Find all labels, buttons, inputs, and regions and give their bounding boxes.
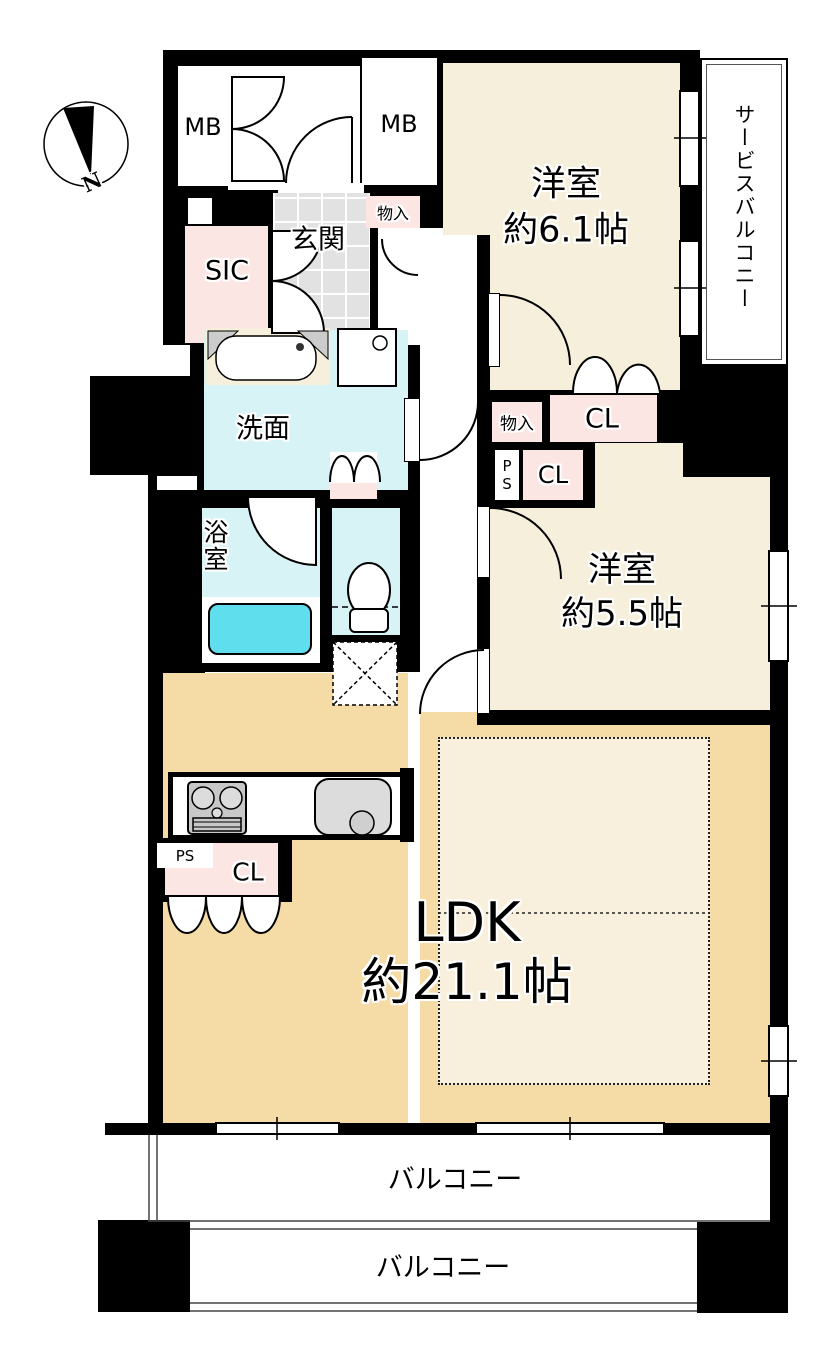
floorplan: N MB MB 玄関 物入 SIC 洋室 約6.1帖 サービスバルコニー 洗面 … [0,0,828,1371]
window-ldk-south-left [215,1122,340,1135]
balcony-upper-label: バルコニー [388,1158,522,1197]
wall-ldk-right [770,712,788,1222]
linen-closet [330,452,377,483]
window-bedroom1-upper [679,90,700,187]
shoe-closet-niche [188,198,212,224]
bedroom1-name: 洋室 [503,163,629,209]
ldk-label: LDK 約21.1帖 [361,892,572,1012]
window-bedroom2 [768,550,789,662]
closet-mid-label: CL [538,461,568,489]
vanity-counter [206,328,330,385]
ldk-name: LDK [361,892,572,954]
entrance-label: 玄関 [291,218,345,257]
entrance-storage-label: 物入 [377,200,409,224]
bedroom1-label: 洋室 約6.1帖 [503,163,629,254]
wall-kitchen-stub [400,768,414,842]
bathtub [208,603,312,655]
toilet-room-floor [332,508,400,635]
closet-kitchen-label: CL [232,858,263,887]
pipe-space-mid-label: PS [498,457,516,493]
door-leaf-bedroom1 [488,293,500,367]
hallway-main [420,228,477,713]
mid-storage-label: 物入 [500,410,534,435]
bathroom-label: 浴室 [196,519,232,573]
bedroom1-floor-b [490,235,680,390]
wall-balcony2-right-block [697,1222,788,1313]
kitchen-counter [168,772,413,840]
door-leaf-ldk [477,648,490,714]
entry-alcove [228,66,360,190]
service-balcony-label: サービスバルコニー [729,104,759,311]
bedroom2-size: 約5.5帖 [561,592,683,636]
wall-left-column [148,475,205,673]
left-wall-niche [157,476,197,490]
window-ldk-south-right [475,1122,665,1135]
linen-closet-shelf [330,483,377,499]
door-leaf-bedroom2 [477,506,490,578]
washroom-label: 洗面 [236,407,290,446]
pipe-space-kitchen-label: PS [176,847,195,865]
window-bedroom1-lower [679,240,700,337]
shoe-closet-label: SIC [205,256,249,287]
wall-bedroom2-corner-patch [683,443,770,477]
entry-doorframe [222,80,230,180]
bedroom2-name: 洋室 [561,548,683,592]
entrance-floor [273,193,370,343]
balcony-lower-label: バルコニー [376,1246,510,1285]
washer-pan [337,328,397,387]
closet-top-label: CL [585,404,619,435]
compass-north-label: N [78,167,106,198]
wall-ldk-left [148,673,163,1135]
door-gap-washroom [404,398,420,462]
meter-box-right-label: MB [380,110,417,138]
ldk-size: 約21.1帖 [361,954,572,1012]
window-ldk-east [768,1025,789,1097]
wall-left-protrusion [90,376,205,475]
wall-bottom [105,1123,788,1135]
meter-box-left-label: MB [184,113,221,141]
bedroom1-size: 約6.1帖 [503,208,629,254]
bedroom2-label: 洋室 約5.5帖 [561,548,683,636]
wall-balcony2-left-block [98,1220,190,1312]
